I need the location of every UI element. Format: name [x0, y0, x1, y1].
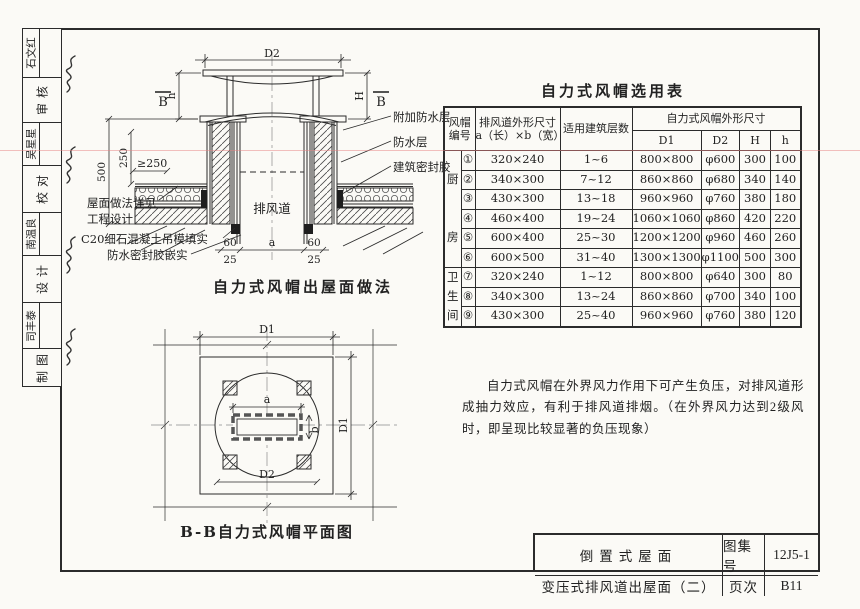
cell-num: ⑧: [461, 287, 475, 307]
cell-floors: 31~40: [560, 248, 632, 268]
dim-a-label: a: [269, 236, 276, 249]
section-caption: 自力式风帽出屋面做法: [213, 278, 393, 296]
cell-h: 100: [771, 287, 801, 307]
cell-H: 420: [740, 209, 771, 229]
table-row: ②340×3007~12860×860φ680340140: [444, 170, 801, 190]
cell-d2: φ960: [701, 229, 739, 249]
cell-h: 300: [771, 248, 801, 268]
dim-25-left: 25: [223, 254, 236, 266]
plan-dim-a: a: [264, 393, 271, 406]
cell-h: 220: [771, 209, 801, 229]
plan-dim-d2: D2: [259, 468, 275, 481]
cell-d1: 860×860: [632, 287, 701, 307]
plan-drawing: a b D1 D1 D2 B-B自力式风帽平面图: [145, 315, 405, 545]
cell-H: 500: [740, 248, 771, 268]
selection-table: 风帽 编号 排风道外形尺寸 a（长）×b（宽） 适用建筑层数 自力式风帽外形尺寸…: [443, 106, 802, 328]
section-detail-drawing: D2 h H B B 500 250 ≥250 排风道 附加防水层 防水层 建筑…: [75, 32, 435, 304]
cell-d2: φ640: [701, 268, 739, 288]
cell-h: 260: [771, 229, 801, 249]
cell-num: ⑤: [461, 229, 475, 249]
label-addl-waterproof: 附加防水层: [393, 110, 451, 124]
cell-duct: 600×500: [475, 248, 560, 268]
signature-scribble-icon: [61, 234, 79, 276]
cell-H: 300: [740, 268, 771, 288]
stamp-name-box: 吴星星: [23, 123, 40, 165]
header-cap-size: 自力式风帽外形尺寸: [632, 107, 801, 131]
cell-H: 340: [740, 170, 771, 190]
cell-H: 300: [740, 151, 771, 171]
label-roof-note-1: 屋面做法详见: [87, 196, 156, 210]
duct-opening: [233, 415, 301, 439]
label-wp-sealant: 防水密封胶嵌实: [107, 248, 188, 262]
selection-table-title: 自力式风帽选用表: [443, 80, 783, 101]
note-paragraph: 自力式风帽在外界风力作用下可产生负压，对排风道形成抽力效应，有利于排风道排烟。（…: [462, 376, 804, 440]
cell-num: ④: [461, 209, 475, 229]
stamp-name-box: 南温良: [23, 213, 40, 255]
cell-h: 140: [771, 170, 801, 190]
cell-floors: 25~30: [560, 229, 632, 249]
role-label-text: 校 对: [34, 174, 51, 204]
cell-d1: 860×860: [632, 170, 701, 190]
stamp-name-box: 司丰泰: [23, 303, 40, 348]
cell-floors: 1~6: [560, 151, 632, 171]
stamp-name-box: 石文红: [23, 29, 40, 77]
dim-25-right: 25: [307, 254, 320, 266]
cell-H: 380: [740, 190, 771, 210]
sidebar-name-cell: 南温良: [23, 213, 61, 256]
cell-d2: φ680: [701, 170, 739, 190]
dim-60-right: 60: [307, 237, 320, 249]
role-label-text: 审 核: [34, 85, 51, 115]
cell-floors: 7~12: [560, 170, 632, 190]
cell-d2: φ860: [701, 209, 739, 229]
table-row: 卫生间⑦320×2401~12800×800φ64030080: [444, 268, 801, 288]
table-row: ④460×40019~241060×1060φ860420220: [444, 209, 801, 229]
sidebar-role-cell: 制 图: [23, 349, 61, 386]
cell-num: ⑦: [461, 268, 475, 288]
cell-d2: φ760: [701, 190, 739, 210]
cell-duct: 340×300: [475, 170, 560, 190]
cell-duct: 460×400: [475, 209, 560, 229]
cell-duct: 430×300: [475, 190, 560, 210]
cell-d1: 800×800: [632, 268, 701, 288]
table-row: ③430×30013~18960×960φ760380180: [444, 190, 801, 210]
cell-d1: 1300×1300: [632, 248, 701, 268]
cell-duct: 320×240: [475, 268, 560, 288]
sidebar: 石文红审 核吴星星校 对南温良设 计司丰泰制 图: [22, 28, 61, 387]
cell-num: ⑨: [461, 307, 475, 327]
cell-d2: φ700: [701, 287, 739, 307]
table-row: ⑥600×50031~401300×1300φ1100500300: [444, 248, 801, 268]
atlas-page: 石文红审 核吴星星校 对南温良设 计司丰泰制 图: [0, 0, 860, 609]
atlas-number-value: 12J5-1: [765, 535, 818, 576]
cell-num: ①: [461, 151, 475, 171]
cell-H: 460: [740, 229, 771, 249]
stamp-name-text: 南温良: [24, 218, 39, 250]
sidebar-role-cell: 审 核: [23, 78, 61, 123]
duct-label: 排风道: [253, 201, 291, 216]
cell-d1: 1200×1200: [632, 229, 701, 249]
cell-floors: 19~24: [560, 209, 632, 229]
table-row: ⑧340×30013~24860×860φ700340100: [444, 287, 801, 307]
room-group-cell: 厨房: [444, 151, 461, 268]
header-h: h: [771, 131, 801, 151]
dim-500-label: 500: [96, 162, 108, 182]
cell-num: ③: [461, 190, 475, 210]
signature-scribble-icon: [61, 326, 79, 368]
header-duct-size: 排风道外形尺寸 a（长）×b（宽）: [475, 107, 560, 151]
table-row: ⑤600×40025~301200×1200φ960460260: [444, 229, 801, 249]
cell-d1: 1060×1060: [632, 209, 701, 229]
cell-d1: 800×800: [632, 151, 701, 171]
cell-floors: 25~40: [560, 307, 632, 327]
page-number-label: 页次: [723, 576, 765, 596]
cell-floors: 1~12: [560, 268, 632, 288]
cell-d1: 960×960: [632, 190, 701, 210]
cell-d2: φ760: [701, 307, 739, 327]
dim-250-label: 250: [118, 148, 130, 168]
header-d2: D2: [701, 131, 739, 151]
title-block: 倒置式屋面 图集号 12J5-1 变压式排风道出屋面（二） 页次 B11: [533, 533, 820, 572]
cell-H: 340: [740, 287, 771, 307]
label-c20: C20细石混凝土吊模填实: [81, 232, 208, 246]
atlas-number-label: 图集号: [723, 535, 765, 576]
cell-floors: 13~24: [560, 287, 632, 307]
plan-dim-b: b: [308, 426, 321, 433]
dim-H-label: H: [353, 91, 366, 101]
table-row: ⑨430×30025~40960×960φ760380120: [444, 307, 801, 327]
cell-num: ⑥: [461, 248, 475, 268]
dim-h-left: [175, 70, 201, 122]
role-label-text: 制 图: [34, 352, 51, 382]
title-block-project-line1: 倒置式屋面: [535, 535, 723, 576]
page-number-value: B11: [765, 576, 818, 596]
cell-duct: 320×240: [475, 151, 560, 171]
dim-60-left: 60: [223, 237, 236, 249]
cell-duct: 430×300: [475, 307, 560, 327]
signature-scribble-icon: [61, 144, 79, 186]
section-mark-left: B: [158, 95, 168, 110]
header-H: H: [740, 131, 771, 151]
dim-ge250-label: ≥250: [137, 157, 167, 170]
cell-duct: 600×400: [475, 229, 560, 249]
signature-scribble-icon: [61, 53, 79, 95]
label-roof-note-2: 工程设计: [87, 212, 133, 226]
cell-duct: 340×300: [475, 287, 560, 307]
stamp-name-text: 司丰泰: [24, 310, 39, 342]
cell-H: 380: [740, 307, 771, 327]
cell-h: 120: [771, 307, 801, 327]
label-waterproof: 防水层: [393, 135, 428, 149]
plan-caption: B-B自力式风帽平面图: [180, 523, 354, 541]
title-block-project-line2: 变压式排风道出屋面（二）: [535, 576, 723, 596]
sidebar-role-cell: 校 对: [23, 166, 61, 213]
sidebar-role-cell: 设 计: [23, 256, 61, 303]
cell-num: ②: [461, 170, 475, 190]
room-group-cell: 卫生间: [444, 268, 461, 327]
stamp-name-text: 吴星星: [24, 128, 39, 160]
role-label-text: 设 计: [34, 264, 51, 294]
sidebar-name-cell: 司丰泰: [23, 303, 61, 349]
sidebar-name-cell: 石文红: [23, 29, 61, 78]
plan-dim-d1-top: D1: [259, 323, 275, 336]
cell-d2: φ1100: [701, 248, 739, 268]
wind-cap: [200, 70, 346, 126]
sidebar-name-cell: 吴星星: [23, 123, 61, 166]
roof-right: [337, 184, 423, 254]
cell-h: 80: [771, 268, 801, 288]
cell-h: 100: [771, 151, 801, 171]
header-floors: 适用建筑层数: [560, 107, 632, 151]
cell-d1: 960×960: [632, 307, 701, 327]
stamp-name-text: 石文红: [24, 37, 39, 69]
header-cap-no: 风帽 编号: [444, 107, 475, 151]
dim-d2-label: D2: [264, 47, 280, 60]
section-mark-right: B: [376, 95, 386, 110]
selection-table-body: 厨房①320×2401~6800×800φ600300100②340×3007~…: [444, 151, 801, 327]
header-d1: D1: [632, 131, 701, 151]
plan-dim-d1-right: D1: [337, 417, 350, 433]
cell-floors: 13~18: [560, 190, 632, 210]
table-row: 厨房①320×2401~6800×800φ600300100: [444, 151, 801, 171]
cell-d2: φ600: [701, 151, 739, 171]
cell-h: 180: [771, 190, 801, 210]
